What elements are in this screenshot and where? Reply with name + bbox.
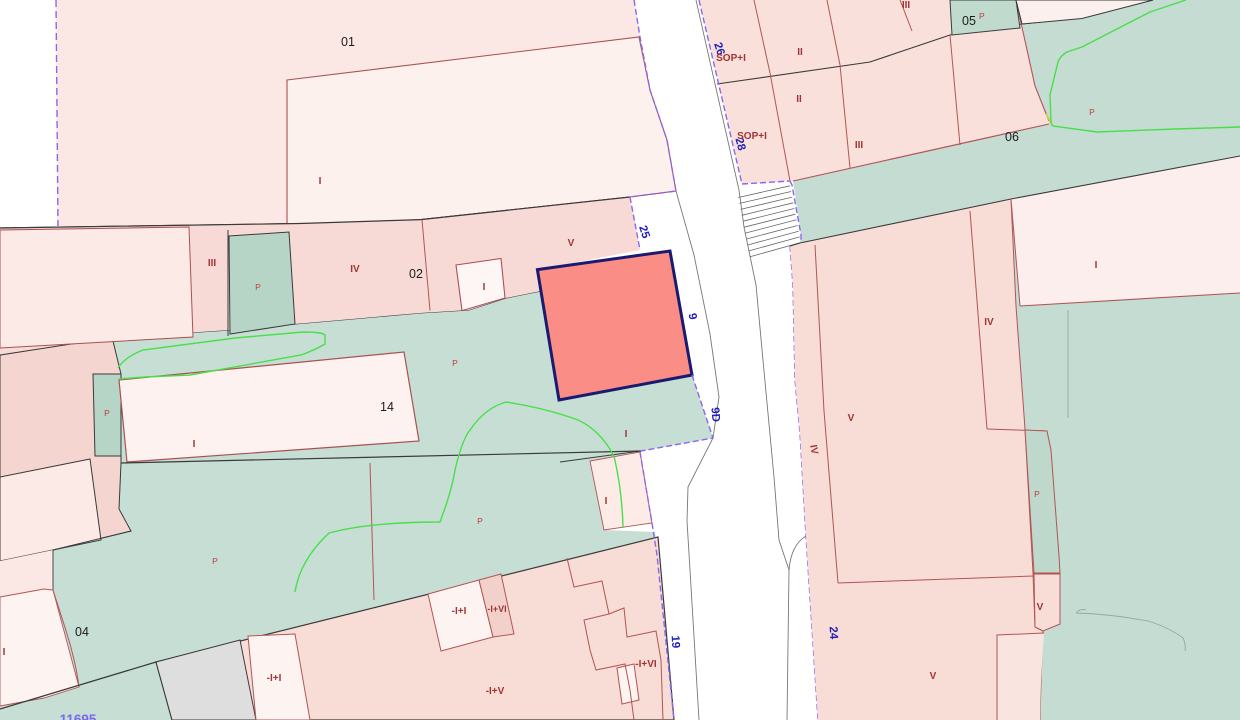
svg-text:P: P bbox=[1089, 107, 1095, 117]
svg-text:P: P bbox=[1034, 489, 1040, 499]
svg-text:P: P bbox=[255, 282, 261, 292]
svg-text:19: 19 bbox=[669, 635, 682, 648]
svg-text:V: V bbox=[848, 413, 855, 424]
svg-text:III: III bbox=[902, 0, 911, 11]
svg-text:I: I bbox=[483, 282, 486, 293]
svg-text:P: P bbox=[452, 358, 458, 368]
svg-text:P: P bbox=[104, 408, 110, 418]
svg-text:-I+V: -I+V bbox=[486, 686, 505, 697]
svg-text:11695: 11695 bbox=[60, 712, 97, 720]
svg-text:I: I bbox=[193, 439, 196, 450]
svg-text:SOP+I: SOP+I bbox=[737, 131, 767, 142]
svg-text:04: 04 bbox=[75, 625, 89, 639]
svg-text:V: V bbox=[568, 238, 575, 249]
svg-text:02: 02 bbox=[409, 267, 423, 281]
svg-text:-I+VI: -I+VI bbox=[635, 659, 657, 670]
svg-text:SOP+I: SOP+I bbox=[716, 53, 746, 64]
svg-text:P: P bbox=[212, 556, 218, 566]
svg-text:01: 01 bbox=[341, 35, 355, 49]
svg-text:24: 24 bbox=[827, 626, 840, 640]
svg-text:-I+VI: -I+VI bbox=[487, 604, 506, 614]
svg-text:V: V bbox=[930, 671, 937, 682]
svg-text:I: I bbox=[319, 176, 322, 187]
svg-text:P: P bbox=[979, 11, 985, 21]
svg-text:06: 06 bbox=[1005, 130, 1019, 144]
svg-text:-I+I: -I+I bbox=[452, 606, 467, 617]
svg-text:I: I bbox=[1095, 260, 1098, 271]
svg-text:P: P bbox=[477, 516, 483, 526]
svg-text:I: I bbox=[625, 429, 628, 440]
svg-text:III: III bbox=[208, 258, 217, 269]
svg-text:II: II bbox=[796, 94, 802, 105]
svg-text:IV: IV bbox=[350, 264, 360, 275]
svg-text:05: 05 bbox=[962, 14, 976, 28]
svg-text:9D: 9D bbox=[708, 407, 721, 423]
svg-text:14: 14 bbox=[380, 400, 394, 414]
svg-text:I: I bbox=[605, 496, 608, 507]
svg-text:II: II bbox=[797, 47, 803, 58]
svg-text:V: V bbox=[1037, 602, 1044, 613]
svg-text:III: III bbox=[855, 140, 864, 151]
svg-text:-I+I: -I+I bbox=[267, 673, 282, 684]
svg-text:IV: IV bbox=[984, 317, 994, 328]
svg-text:I: I bbox=[3, 647, 6, 658]
